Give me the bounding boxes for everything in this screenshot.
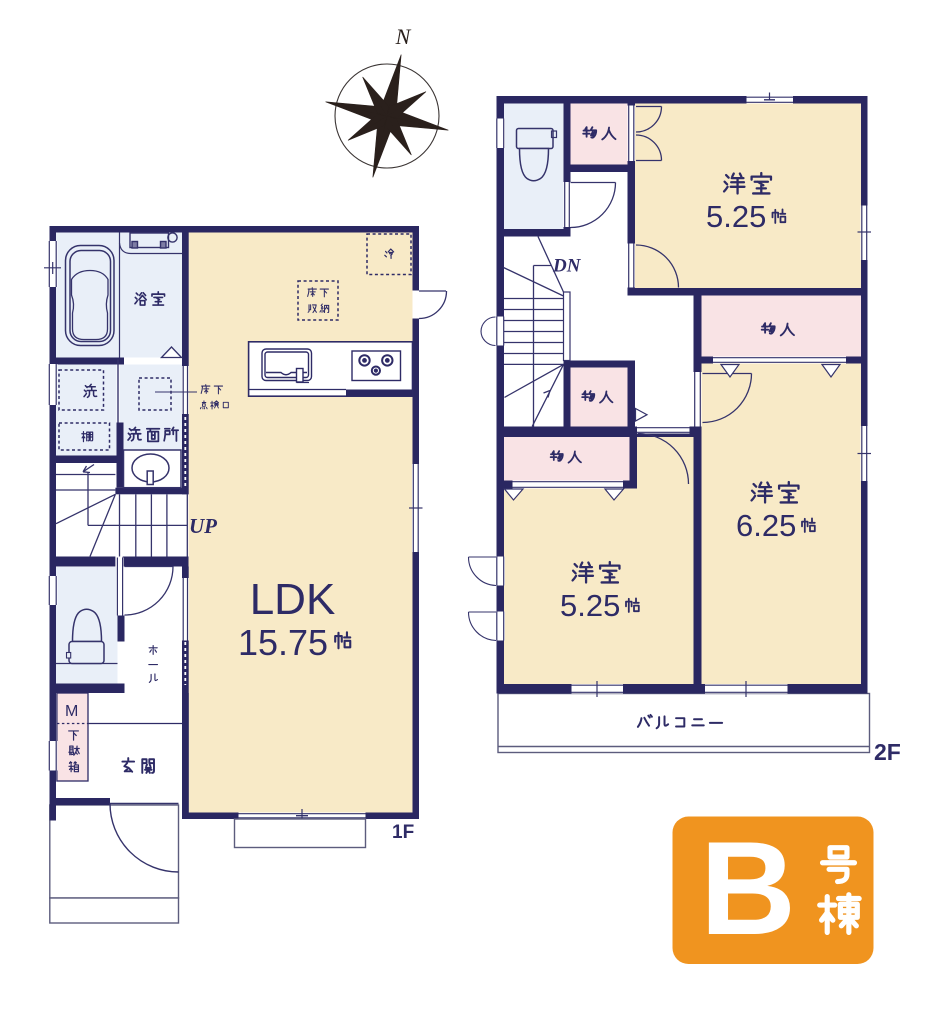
svg-text:B: B	[700, 815, 796, 963]
svg-text:5.25: 5.25	[706, 199, 766, 234]
svg-text:LDK: LDK	[250, 575, 336, 624]
svg-text:DN: DN	[552, 256, 582, 277]
svg-text:UP: UP	[189, 514, 217, 538]
svg-text:6.25: 6.25	[736, 508, 796, 543]
svg-text:5.25: 5.25	[560, 588, 620, 623]
svg-text:2F: 2F	[874, 739, 901, 765]
svg-text:15.75: 15.75	[238, 622, 328, 663]
svg-text:1F: 1F	[392, 822, 414, 843]
svg-text:M: M	[65, 703, 78, 720]
svg-text:N: N	[395, 24, 412, 49]
